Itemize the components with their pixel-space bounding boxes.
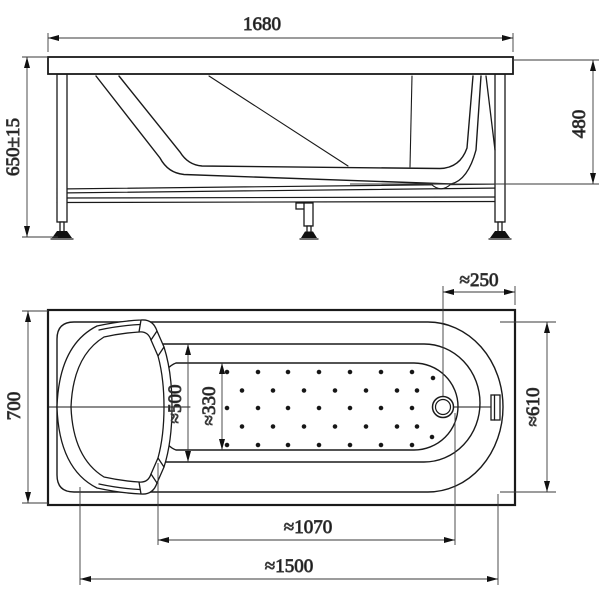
anti-slip-dot (333, 425, 337, 429)
dim-drain-offset: ≈250 (443, 270, 515, 396)
middle-foot (301, 232, 317, 239)
anti-slip-dot (317, 443, 321, 447)
shell-inner-contour (119, 76, 473, 169)
dim-overall-length: 1680 (48, 14, 513, 52)
anti-slip-dot (256, 406, 260, 410)
dim-label-drain-offset: ≈250 (460, 270, 499, 291)
anti-slip-dot (302, 425, 306, 429)
anti-slip-dot (286, 443, 290, 447)
anti-slip-dot (333, 389, 337, 393)
anti-slip-dot (348, 370, 352, 374)
anti-slip-dot (395, 389, 399, 393)
anti-slip-dot (256, 370, 260, 374)
dim-floor-length: ≈1070 (158, 413, 455, 545)
anti-slip-dot (317, 370, 321, 374)
anti-slip-dot (348, 443, 352, 447)
dim-label-overall-width: 700 (4, 392, 25, 421)
anti-slip-dot (379, 370, 383, 374)
left-leg (51, 74, 73, 239)
anti-slip-dot (256, 443, 260, 447)
dim-label-floor-length: ≈1070 (284, 517, 332, 538)
anti-slip-dot (348, 406, 352, 410)
dim-label-overall-height: 650±15 (3, 118, 24, 176)
dim-overall-height: 650±15 (3, 57, 58, 237)
anti-slip-dot (271, 389, 275, 393)
overflow-fitting (491, 395, 500, 420)
anti-slip-dot (364, 389, 368, 393)
dim-label-overall-length: 1680 (243, 14, 281, 35)
dim-label-shell-length: ≈1500 (265, 556, 313, 577)
anti-slip-dot (286, 406, 290, 410)
dim-label-right-inner-width: ≈610 (523, 388, 544, 427)
anti-slip-dot (410, 370, 414, 374)
dim-right-inner-width: ≈610 (500, 322, 556, 492)
anti-slip-dot (286, 370, 290, 374)
anti-slip-dot (379, 406, 383, 410)
middle-leg (296, 203, 318, 239)
dim-inner-depth: 480 (350, 60, 599, 184)
anti-slip-dot (410, 443, 414, 447)
bathtub-drawing-svg: 1680 650±15 480 (0, 0, 600, 600)
dim-label-rim-inner-width: ≈500 (165, 385, 186, 424)
tub-shell-profile (96, 76, 481, 189)
anti-slip-dot (240, 389, 244, 393)
right-foot (490, 231, 510, 238)
anti-slip-dot (271, 425, 275, 429)
anti-slip-dot (415, 425, 419, 429)
anti-slip-dot (410, 406, 414, 410)
anti-slip-dot (317, 406, 321, 410)
anti-slip-dot (431, 376, 435, 380)
right-leg (486, 74, 511, 239)
dim-label-floor-width: ≈330 (199, 387, 220, 426)
plan-view (48, 310, 515, 505)
far-wall-edge-left (209, 76, 348, 166)
side-view (48, 57, 513, 239)
dim-floor-width: ≈330 (199, 363, 225, 450)
anti-slip-dot (379, 443, 383, 447)
anti-slip-dot (364, 425, 368, 429)
anti-slip-dot (302, 389, 306, 393)
drain (433, 397, 454, 418)
tub-rim (48, 57, 513, 74)
anti-slip-dot (430, 435, 434, 439)
anti-slip-dot (225, 406, 229, 410)
dim-overall-width: 700 (4, 311, 48, 503)
right-brace (486, 76, 495, 150)
anti-slip-dot (415, 389, 419, 393)
anti-slip-dot (240, 425, 244, 429)
anti-slip-dot (225, 443, 229, 447)
dim-label-inner-depth: 480 (569, 110, 590, 139)
anti-slip-dot-pattern (225, 370, 435, 447)
anti-slip-dot (225, 370, 229, 374)
anti-slip-dot (395, 425, 399, 429)
technical-drawing-page: 1680 650±15 480 (0, 0, 600, 600)
far-wall-edge-right (410, 76, 412, 167)
